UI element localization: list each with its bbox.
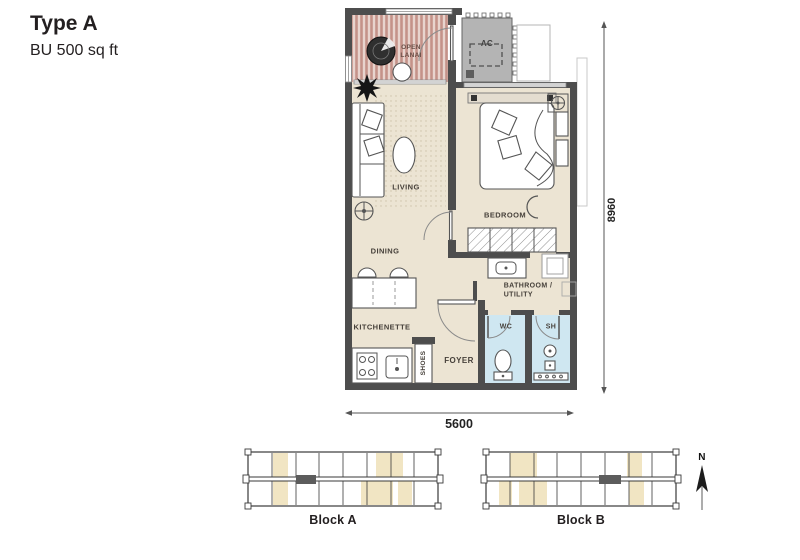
- room-label-foyer: FOYER: [444, 356, 474, 366]
- room-label-bathroom-utility: BATHROOM / UTILITY: [504, 282, 553, 300]
- room-label-shoes: SHOES: [419, 351, 427, 376]
- lift-core: [599, 475, 621, 484]
- coffee-table: [393, 137, 415, 173]
- floor-plan-page: Type A BU 500 sq ft OPEN LANAI AC LIVING…: [0, 0, 800, 560]
- room-label-kitchenette: KITCHENETTE: [354, 322, 411, 331]
- nightstand: [556, 112, 568, 136]
- block-a-diagram: [243, 449, 443, 509]
- north-label: N: [698, 452, 706, 465]
- dining-table: [352, 278, 416, 308]
- side-table: [393, 63, 411, 81]
- wardrobe: [468, 228, 556, 252]
- apartment-floor-plan: [345, 8, 587, 390]
- plant-icon: [353, 74, 381, 102]
- headboard: [468, 93, 556, 103]
- lift-core: [296, 475, 316, 484]
- dimension-width: 5600: [445, 417, 473, 431]
- built-up-area: BU 500 sq ft: [30, 42, 118, 60]
- room-label-open-lanai: OPEN LANAI: [400, 44, 421, 60]
- room-label-living: LIVING: [392, 182, 419, 191]
- window-ledge-outline: [577, 58, 587, 206]
- bedroom-furniture: [468, 93, 568, 252]
- plan-graphics: [0, 0, 800, 560]
- wc-fixtures: [494, 350, 512, 380]
- block-b-diagram: [481, 449, 681, 509]
- block-a-label: Block A: [309, 513, 356, 529]
- plan-type-title: Type A: [30, 12, 98, 36]
- room-label-wc: WC: [500, 324, 512, 333]
- room-label-sh: SH: [546, 324, 557, 333]
- ceiling-fan-icon: [355, 202, 373, 220]
- room-label-bedroom: BEDROOM: [484, 210, 526, 219]
- room-label-ac: AC: [481, 39, 493, 49]
- dimension-line-horizontal: [345, 410, 574, 415]
- ac-ledge: [462, 13, 550, 82]
- nightstand: [556, 140, 568, 166]
- toilet: [495, 350, 511, 372]
- block-b-label: Block B: [557, 513, 605, 529]
- dimension-height: 8960: [606, 198, 618, 222]
- north-arrow-icon: [696, 465, 708, 510]
- room-label-dining: DINING: [371, 246, 400, 255]
